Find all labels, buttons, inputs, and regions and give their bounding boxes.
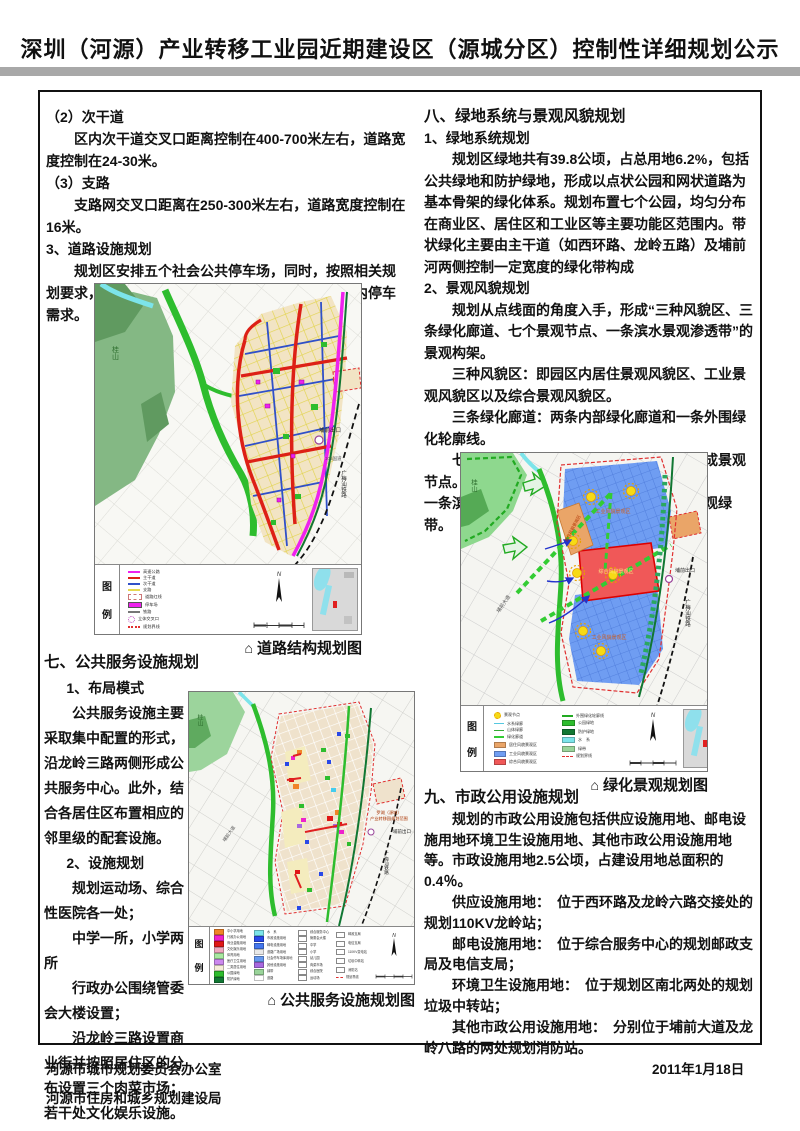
legend-item: 中学: [298, 943, 334, 949]
legend-swatch-fill: [562, 720, 575, 726]
map-label-exit: 埔前出口: [675, 567, 695, 574]
north-arrow-icon: N: [389, 931, 399, 959]
north-and-scale: N: [372, 927, 414, 984]
legend-item: 外围绿化轮廓线: [562, 714, 626, 718]
legend-item: 道路: [254, 975, 296, 981]
road-structure-map: 桂山 埔前出口 105国道 广梅汕铁路 图 例 高速公路主干道次干道支路道路红线…: [94, 283, 362, 635]
map-label-mountain: 桂山: [196, 713, 203, 727]
legend-title: 图 例: [461, 706, 484, 771]
legend-label: 防护绿地: [227, 978, 240, 981]
paragraph: 区内次干道交叉口距离控制在400-700米左右，道路宽度控制在24-30米。: [46, 128, 408, 172]
legend-item: 运动场: [298, 975, 334, 981]
legend-swatch-tag: [298, 969, 307, 975]
legend-label: 绿化廊道: [507, 735, 523, 739]
public-service-map: 桂山 罗湖（源城） 产业转移园规划范围 埔前出口 埔前大道 广梅汕铁路 图 例 …: [188, 691, 415, 985]
legend-label: 居住风貌景观区: [509, 743, 537, 747]
legend-items: 水 系市政设施用地邮电设施用地道路广场用地社会停车场库用地其他设施用地绿带道路: [252, 927, 296, 984]
caption-marker-icon: ⌂: [245, 640, 253, 656]
legend-swatch-fill: [254, 949, 264, 955]
road-structure-map-svg: 桂山 埔前出口 105国道 广梅汕铁路: [95, 284, 361, 565]
legend-item: 肉菜市场: [298, 962, 334, 968]
footer-date: 2011年1月18日: [652, 1058, 744, 1078]
caption-marker-icon: ⌂: [268, 992, 276, 1008]
legend-swatch-fill: [254, 962, 264, 968]
map3-caption: ⌂公共服务设施规划图: [200, 989, 415, 1010]
svg-text:N: N: [651, 713, 656, 719]
legend-label: 工业风貌景观区: [509, 752, 537, 756]
legend-swatch-tag: [336, 949, 345, 955]
paragraph: 供应设施用地： 位于西环路及龙岭六路交接处的规划110KV龙岭站；: [424, 892, 754, 934]
legend-item: 综合服务中心: [298, 930, 334, 936]
legend-swatch-tag: [298, 930, 307, 936]
legend-label: 规划界线: [576, 754, 592, 758]
legend-swatch-fill: [254, 956, 264, 962]
legend-title: 图 例: [95, 565, 120, 634]
legend-title-char: 图: [467, 718, 477, 733]
legend-item: 绿带: [254, 969, 296, 975]
greening-landscape-map-svg: 桂山 工业风貌景观区 综合风貌景观区 居住风貌景观区 工业风貌景观区 埔前出口 …: [461, 453, 707, 706]
legend-item: 邮政支局: [336, 932, 372, 938]
legend-title-char: 图: [102, 578, 112, 593]
legend-swatch-dots: [128, 626, 140, 628]
legend-swatch-fill: [254, 969, 264, 975]
legend-item: 综合医院: [298, 969, 334, 975]
map-label-exit: 埔前出口: [393, 828, 411, 835]
legend-item: 110KV变电站: [336, 949, 372, 955]
legend-label: 综合服务中心: [310, 931, 329, 934]
legend-label: 立体交叉口: [138, 617, 159, 621]
scale-bar: [251, 621, 307, 630]
scale-bar: [374, 973, 414, 980]
legend-items: 高速公路主干道次干道支路道路红线停车场铁路立体交叉口规划界线: [120, 565, 204, 634]
legend-label: 体育用地: [227, 954, 240, 957]
interchange-symbol: [666, 576, 673, 583]
legend-item: 消防站: [336, 967, 372, 973]
map3-legend: 图 例 中小学用地行政办公用地商业金融用地文化娱乐用地体育用地医疗卫生用地二类居…: [189, 926, 414, 984]
legend-swatch-line: [128, 571, 140, 573]
legend-items: 综合服务中心管委会大楼中学小学幼儿园肉菜市场综合医院运动场: [296, 927, 334, 984]
legend-label: 水 系: [578, 738, 590, 742]
legend-label: 行政办公用地: [227, 936, 246, 939]
legend-swatch-fill: [254, 936, 264, 942]
legend-items: 景观节点水系绿廊山体绿廊绿化廊道居住风貌景观区工业风貌景观区综合风貌景观区: [484, 706, 560, 771]
legend-item: 山体绿廊: [494, 728, 560, 732]
legend-label: 市政设施用地: [267, 937, 286, 940]
legend-swatch-fill: [494, 742, 506, 748]
legend-title-char: 例: [467, 744, 477, 759]
legend-label: 水 系: [267, 931, 277, 934]
location-inset-map: [683, 709, 707, 768]
legend-item: 高速公路: [128, 570, 204, 574]
zone-label-comprehensive: 综合风貌景观区: [598, 568, 633, 575]
legend-item: 支路: [128, 588, 204, 592]
map-label-exit: 埔前出口: [319, 426, 341, 434]
legend-swatch-dashdot: [562, 756, 573, 757]
page-title: 深圳（河源）产业转移工业园近期建设区（源城分区）控制性详细规划公示: [0, 32, 800, 64]
legend-swatch-fill: [214, 977, 224, 983]
legend-label: 铁路: [143, 610, 151, 614]
paragraph: 规划运动场、综合性医院各一处；: [44, 876, 186, 926]
legend-label: 医疗卫生用地: [227, 960, 246, 963]
legend-label: 道路广场用地: [267, 951, 286, 954]
legend-item: 其他设施用地: [254, 962, 296, 968]
paragraph: 2、景观风貌规划: [424, 278, 754, 300]
legend-swatch-tag: [298, 975, 307, 981]
legend-label: 道路: [267, 977, 273, 980]
legend-label: 次干道: [143, 582, 156, 586]
greening-landscape-map: 桂山 工业风貌景观区 综合风貌景观区 居住风貌景观区 工业风貌景观区 埔前出口 …: [460, 452, 708, 772]
legend-item: 规划界线: [128, 625, 204, 629]
legend-swatch-fill: [562, 737, 575, 743]
legend-title: 图 例: [189, 927, 210, 984]
legend-swatch-fill: [494, 759, 506, 765]
legend-item: 管委会大楼: [298, 936, 334, 942]
interchange-symbol: [368, 829, 374, 835]
legend-item: 规划界线: [336, 976, 372, 979]
legend-label: 公园绿地: [578, 721, 594, 725]
legend-item: 道路广场用地: [254, 949, 296, 955]
legend-label: 文化娱乐用地: [227, 948, 246, 951]
legend-swatch-tag: [298, 936, 307, 942]
legend-label: 管委会大楼: [310, 937, 326, 940]
legend-item: 小学: [298, 949, 334, 955]
legend-label: 运动场: [310, 977, 320, 980]
legend-label: 中学: [310, 944, 316, 947]
legend-item: 水系绿廊: [494, 722, 560, 726]
legend-swatch-dashdot: [336, 977, 343, 978]
map-label-road: 105国道: [325, 455, 342, 462]
map-label-railway: 广梅汕铁路: [384, 851, 390, 876]
paragraph: 三条绿化廊道：两条内部绿化廊道和一条外围绿化轮廓线。: [424, 407, 754, 450]
legend-title-char: 图: [194, 937, 203, 950]
legend-title-char: 例: [194, 961, 203, 974]
legend-label: 防护绿地: [578, 730, 594, 734]
legend-label: 高速公路: [143, 570, 160, 574]
map-label-callout2: 产业转移园规划范围: [370, 815, 408, 822]
scale-bar: [628, 759, 678, 767]
legend-item: 邮电设施用地: [254, 943, 296, 949]
caption-text: 道路结构规划图: [257, 640, 362, 657]
legend-label: 小学: [310, 951, 316, 954]
legend-item: 绿化廊道: [494, 735, 560, 739]
legend-label: 中小学用地: [227, 930, 243, 933]
footer-org1: 河源市城市规划委员会办公室: [46, 1058, 222, 1078]
legend-swatch-sun: [494, 712, 501, 719]
legend-label: 其他设施用地: [267, 964, 286, 967]
legend-item: 立体交叉口: [128, 616, 204, 623]
legend-swatch-dash: [494, 736, 504, 738]
legend-swatch-fill: [254, 943, 264, 949]
section9-heading: 九、市政公用设施规划: [424, 788, 754, 809]
legend-swatch-dash: [128, 611, 140, 613]
legend-label: 邮电设施用地: [267, 944, 286, 947]
paragraph: 行政办公围绕管委会大楼设置；: [44, 976, 186, 1026]
legend-item: 道路红线: [128, 594, 204, 600]
title-divider-bar: [0, 67, 800, 76]
legend-label: 绿带: [267, 970, 273, 973]
paragraph: 规划从点线面的角度入手，形成“三种风貌区、三条绿化廊道、七个景观节点、一条滨水景…: [424, 300, 754, 365]
legend-label: 社会停车场库用地: [267, 957, 293, 960]
paragraph: 公共服务设施主要采取集中配置的形式，沿龙岭三路两侧形成公共服务中心。此外，结合各…: [44, 701, 186, 851]
map-label-railway: 广梅汕铁路: [340, 469, 347, 499]
map2-legend: 图 例 景观节点水系绿廊山体绿廊绿化廊道居住风貌景观区工业风貌景观区综合风貌景观…: [461, 705, 707, 771]
legend-label: 110KV变电站: [348, 951, 367, 954]
municipal-facilities-text: 九、市政公用设施规划 规划的市政公用设施包括供应设施用地、邮电设施用地环境卫生设…: [424, 788, 754, 1058]
legend-item: 市政设施用地: [254, 936, 296, 942]
legend-items: 邮政支局电信支局110KV变电站垃圾中转站消防站规划界线: [334, 927, 372, 984]
legend-label: 规划界线: [346, 976, 359, 979]
legend-swatch-wave: [494, 730, 504, 731]
legend-item: 主干道: [128, 576, 204, 580]
legend-swatch-circle: [128, 616, 135, 623]
legend-label: 消防站: [348, 969, 358, 972]
legend-swatch-tag: [336, 941, 345, 947]
paragraph: 环境卫生设施用地： 位于规划区南北两处的规划垃圾中转站；: [424, 975, 754, 1017]
legend-swatch-line: [128, 589, 140, 591]
legend-swatch-fill: [562, 729, 575, 735]
paragraph: 支路网交叉口距离在250-300米左右，道路宽度控制在16米。: [46, 194, 408, 238]
legend-items: 中小学用地行政办公用地商业金融用地文化娱乐用地体育用地医疗卫生用地二类居住用地公…: [210, 927, 252, 984]
paragraph: 2、设施规划: [66, 851, 186, 876]
legend-item: 铁路: [128, 610, 204, 614]
legend-label: 停车场: [145, 603, 158, 607]
legend-item: 绿带: [562, 746, 626, 752]
legend-label: 公园绿地: [227, 972, 240, 975]
legend-item: 防护绿地: [214, 977, 252, 983]
svg-text:N: N: [277, 572, 282, 578]
legend-item: 垃圾中转站: [336, 958, 372, 964]
legend-swatch-tag: [298, 949, 307, 955]
paragraph: （2）次干道: [46, 106, 408, 128]
legend-item: 电信支局: [336, 941, 372, 947]
paragraph: 邮电设施用地： 位于综合服务中心的规划邮政支局及电信支局；: [424, 934, 754, 976]
legend-swatch-tag: [298, 956, 307, 962]
legend-item: 公园绿地: [562, 720, 626, 726]
north-and-scale: N: [626, 706, 680, 771]
legend-item: 综合风貌景观区: [494, 759, 560, 765]
section7-heading: 七、公共服务设施规划: [44, 650, 199, 672]
paragraph: 其他市政公用设施用地： 分别位于埔前大道及龙岭八路的两处规划消防站。: [424, 1017, 754, 1059]
paragraph: 1、绿地系统规划: [424, 128, 754, 150]
north-arrow-icon: N: [273, 569, 285, 605]
legend-label: 肉菜市场: [310, 964, 323, 967]
legend-label: 水系绿廊: [507, 722, 523, 726]
legend-label: 幼儿园: [310, 957, 320, 960]
legend-swatch-square: [128, 602, 142, 608]
paragraph: 三种风貌区：即园区内居住景观风貌区、工业景观风貌区以及综合景观风貌区。: [424, 364, 754, 407]
paragraph: 1、布局模式: [66, 676, 186, 701]
legend-label: 商业金融用地: [227, 942, 246, 945]
legend-label: 山体绿廊: [507, 728, 523, 732]
map-label-callout1: 罗湖（源城）: [376, 809, 401, 816]
map-label-railway: 广梅汕铁路: [684, 598, 691, 628]
legend-swatch-tag: [336, 932, 345, 938]
north-arrow-icon: N: [647, 710, 659, 744]
legend-swatch-tag: [298, 962, 307, 968]
legend-swatch-wave: [494, 723, 504, 724]
legend-item: 停车场: [128, 602, 204, 608]
legend-title-char: 例: [102, 606, 112, 621]
legend-swatch-fill: [494, 751, 506, 757]
paragraph: 规划的市政公用设施包括供应设施用地、邮电设施用地环境卫生设施用地、其他市政公用设…: [424, 809, 754, 892]
legend-item: 幼儿园: [298, 956, 334, 962]
legend-label: 邮政支局: [348, 933, 361, 936]
legend-label: 垃圾中转站: [348, 960, 364, 963]
legend-label: 主干道: [143, 576, 156, 580]
legend-label: 支路: [143, 588, 151, 592]
legend-item: 工业风貌景观区: [494, 751, 560, 757]
svg-text:N: N: [392, 933, 396, 939]
legend-swatch-fill: [254, 975, 264, 981]
legend-item: 规划界线: [562, 754, 626, 758]
public-service-map-svg: 桂山 罗湖（源城） 产业转移园规划范围 埔前出口 埔前大道 广梅汕铁路: [189, 692, 414, 927]
location-inset-map: [312, 568, 358, 631]
legend-item: 水 系: [562, 737, 626, 743]
legend-item: 水 系: [254, 930, 296, 936]
legend-label: 综合医院: [310, 970, 323, 973]
paragraph: （3）支路: [46, 172, 408, 194]
legend-item: 居住风貌景观区: [494, 742, 560, 748]
legend-label: 外围绿化轮廓线: [576, 714, 604, 718]
legend-label: 绿带: [578, 747, 586, 751]
paragraph: 规划区绿地共有39.8公顷，占总用地6.2%，包括公共绿地和防护绿地，形成以点状…: [424, 149, 754, 278]
legend-swatch-fill: [254, 930, 264, 936]
legend-swatch-fill: [562, 746, 575, 752]
interchange-symbol: [315, 436, 323, 444]
legend-item: 防护绿地: [562, 729, 626, 735]
legend-swatch-dash: [562, 715, 573, 717]
footer-org2: 河源市住房和城乡规划建设局: [46, 1087, 222, 1107]
legend-label: 综合风貌景观区: [509, 760, 537, 764]
legend-swatch-tag: [298, 943, 307, 949]
legend-label: 景观节点: [504, 713, 520, 717]
legend-swatch-line: [128, 583, 140, 585]
north-and-scale: N: [249, 565, 309, 634]
paragraph: 中学一所，小学两所: [44, 926, 186, 976]
map-label-mountain: 桂山: [112, 345, 120, 361]
paragraph: 3、道路设施规划: [46, 238, 408, 260]
legend-label: 二类居住用地: [227, 966, 246, 969]
zone-label-industrial-north: 工业风貌景观区: [595, 508, 630, 515]
legend-item: 社会停车场库用地: [254, 956, 296, 962]
legend-item: 景观节点: [494, 712, 560, 719]
notice-page: 深圳（河源）产业转移工业园近期建设区（源城分区）控制性详细规划公示 （2）次干道…: [0, 0, 800, 1131]
legend-swatch-box: [128, 594, 142, 600]
legend-item: 次干道: [128, 582, 204, 586]
zone-label-industrial-south: 工业风貌景观区: [591, 634, 626, 641]
legend-label: 道路红线: [145, 595, 162, 599]
caption-text: 公共服务设施规划图: [280, 992, 415, 1009]
legend-label: 规划界线: [143, 625, 160, 629]
legend-swatch-tag: [336, 958, 345, 964]
section8-heading: 八、绿地系统与景观风貌规划: [424, 106, 754, 128]
legend-swatch-tag: [336, 967, 345, 973]
legend-swatch-line: [128, 577, 140, 579]
legend-label: 电信支局: [348, 942, 361, 945]
map1-legend: 图 例 高速公路主干道次干道支路道路红线停车场铁路立体交叉口规划界线 N: [95, 564, 361, 634]
legend-items: 外围绿化轮廓线公园绿地防护绿地水 系绿带规划界线: [560, 706, 626, 771]
